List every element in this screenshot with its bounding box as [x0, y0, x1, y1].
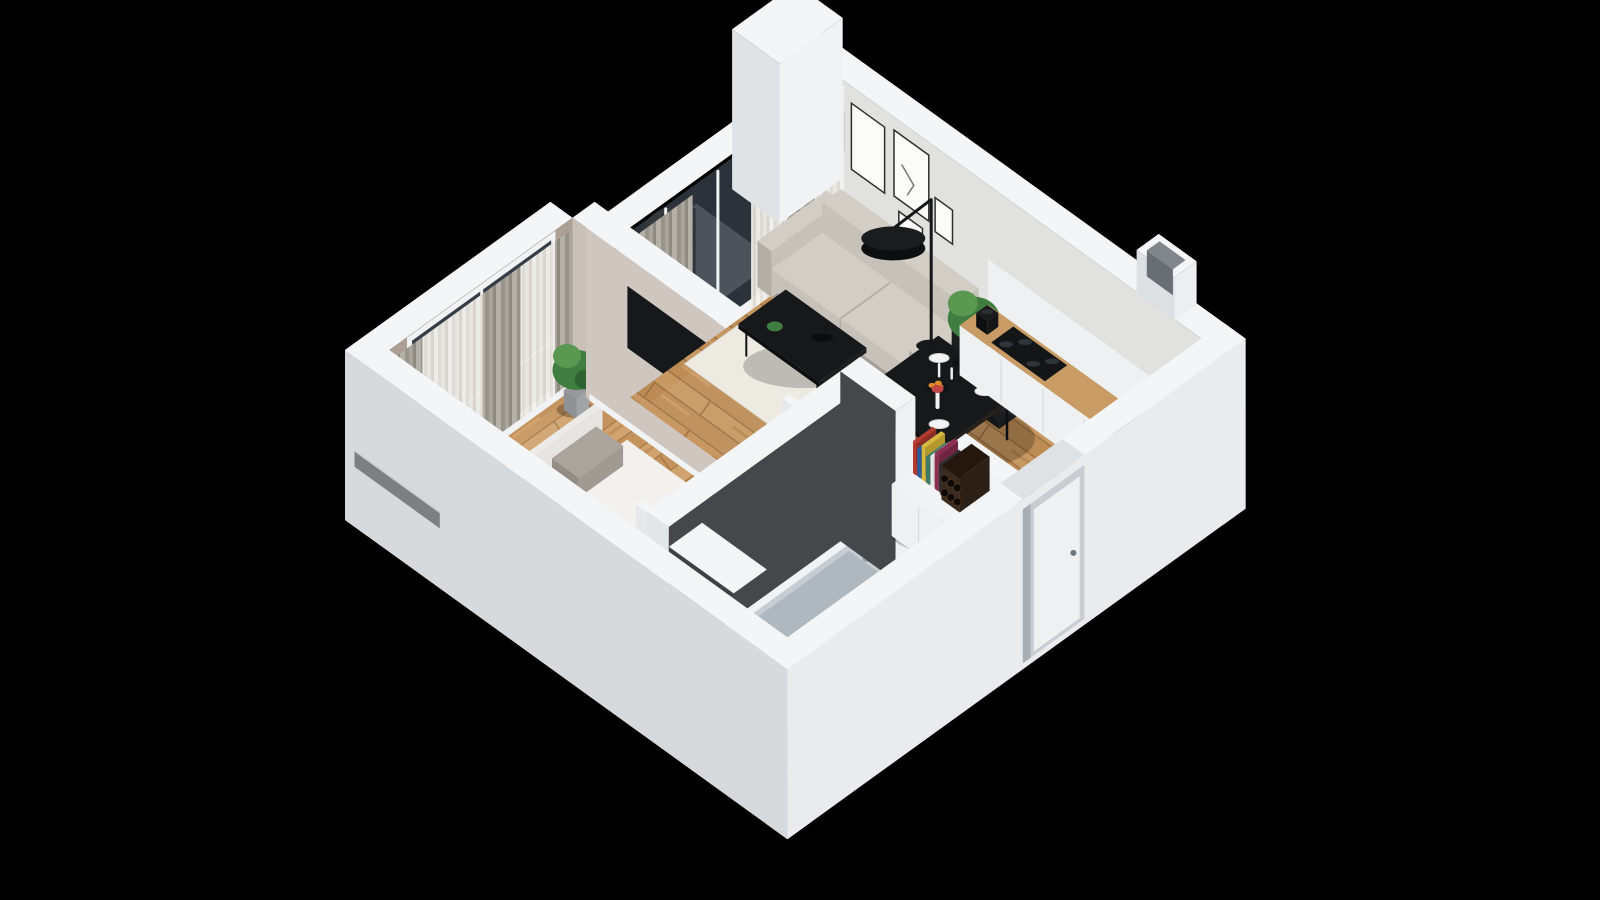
floor-plan-3d-render: [0, 0, 1600, 900]
wine-bottle-6: [953, 498, 961, 506]
cooking-pot-lid: [981, 309, 993, 314]
living-plant-leaves-2: [948, 291, 978, 317]
vase-flowers: [932, 385, 944, 393]
floor-lamp-shade: [861, 226, 925, 250]
floor-plan-viewport: [0, 0, 1600, 900]
burner-2: [1018, 339, 1032, 345]
bedroom-plant-leaves-2: [553, 344, 581, 368]
hallway-wall-a: [840, 357, 915, 581]
wine-bottle-3: [953, 484, 961, 492]
entry-niche-shadow: [1023, 504, 1031, 664]
burner-4: [1045, 358, 1059, 364]
coffee-table-plant: [767, 321, 783, 331]
burner-1: [999, 341, 1013, 347]
apartment-scene: [345, 0, 1246, 839]
entry-door-handle: [1070, 550, 1076, 556]
coffee-table-tray: [811, 334, 833, 342]
burner-3: [1026, 361, 1040, 367]
dining-plate-3: [929, 354, 949, 363]
dining-plate-2: [929, 420, 949, 429]
